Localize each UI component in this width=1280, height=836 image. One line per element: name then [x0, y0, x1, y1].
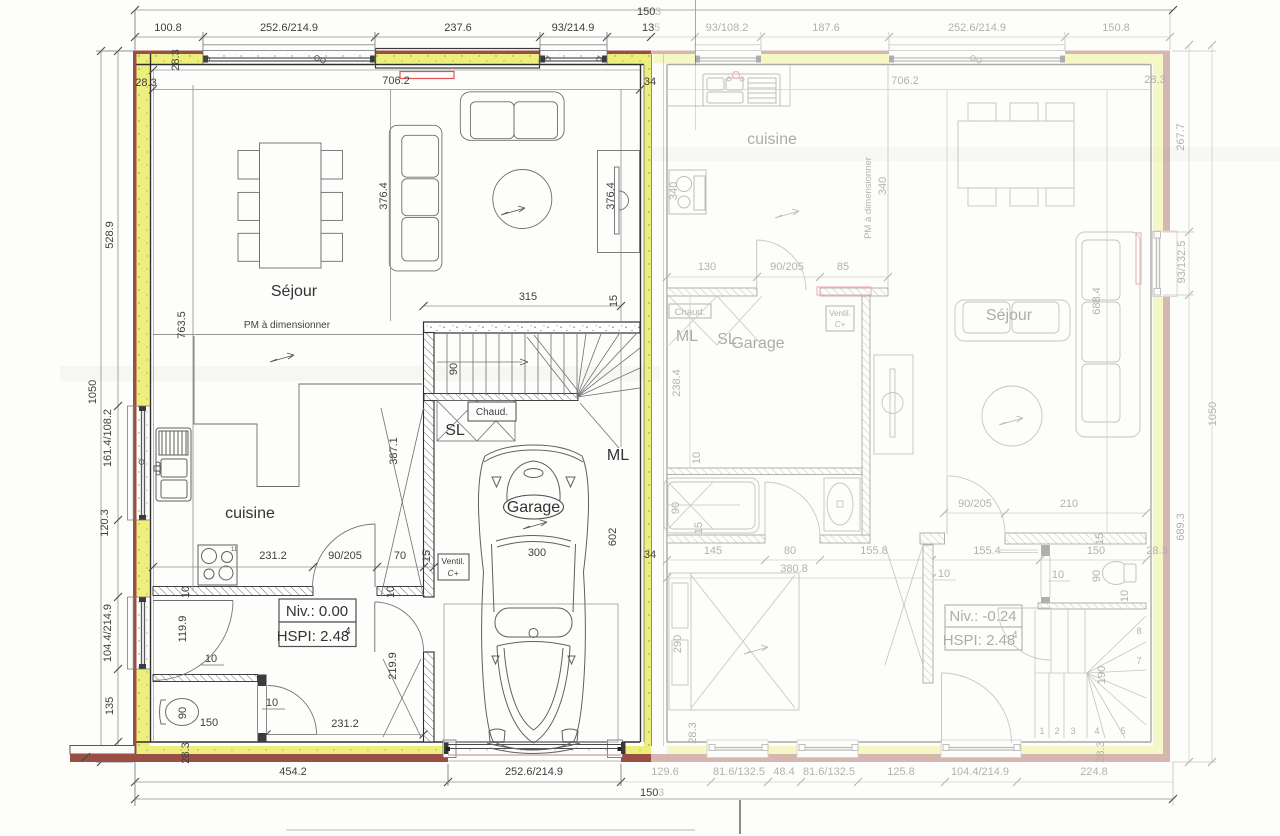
- svg-text:376.4: 376.4: [378, 182, 390, 210]
- svg-text:119.9: 119.9: [177, 616, 189, 643]
- svg-text:ML: ML: [607, 447, 629, 464]
- svg-text:Chaud.: Chaud.: [476, 407, 508, 418]
- svg-text:100.8: 100.8: [154, 22, 182, 34]
- svg-text:252.6/214.9: 252.6/214.9: [505, 766, 563, 778]
- svg-text:120.3: 120.3: [99, 509, 111, 537]
- svg-text:90: 90: [670, 502, 682, 514]
- svg-text:155.4: 155.4: [973, 545, 1001, 557]
- svg-text:688.4: 688.4: [1091, 287, 1103, 315]
- svg-text:2: 2: [1054, 726, 1059, 736]
- svg-text:70: 70: [394, 550, 406, 562]
- svg-text:145: 145: [704, 545, 722, 557]
- svg-text:28.3: 28.3: [135, 77, 156, 89]
- svg-text:90: 90: [1091, 570, 1103, 582]
- svg-text:8: 8: [1136, 626, 1141, 636]
- svg-text:763.5: 763.5: [176, 311, 188, 339]
- svg-text:10: 10: [938, 568, 950, 580]
- svg-text:3: 3: [655, 6, 661, 18]
- svg-text:706.2: 706.2: [382, 75, 410, 87]
- svg-text:10: 10: [1119, 590, 1131, 602]
- svg-text:224.8: 224.8: [1080, 766, 1108, 778]
- svg-text:15: 15: [693, 522, 705, 534]
- svg-text:1: 1: [1039, 726, 1044, 736]
- svg-text:7: 7: [1136, 656, 1141, 666]
- svg-text:252.6/214.9: 252.6/214.9: [260, 22, 318, 34]
- svg-text:10: 10: [180, 586, 192, 598]
- svg-text:150: 150: [200, 717, 218, 729]
- svg-text:340: 340: [877, 177, 889, 195]
- svg-text:5: 5: [1120, 726, 1125, 736]
- svg-text:150: 150: [640, 787, 658, 799]
- svg-text:cuisine: cuisine: [225, 505, 275, 522]
- svg-text:10: 10: [205, 653, 217, 665]
- svg-text:689.3: 689.3: [1175, 513, 1187, 541]
- svg-text:187.6: 187.6: [812, 22, 840, 34]
- svg-text:3: 3: [1070, 726, 1075, 736]
- svg-text:C+: C+: [447, 568, 458, 578]
- svg-text:28.3: 28.3: [180, 742, 192, 763]
- svg-text:231.2: 231.2: [331, 718, 359, 730]
- svg-text:315: 315: [519, 291, 537, 303]
- svg-text:Séjour: Séjour: [271, 283, 318, 300]
- svg-text:Niv.: -0.24: Niv.: -0.24: [949, 608, 1016, 625]
- svg-text:238.4: 238.4: [671, 369, 683, 397]
- svg-text:290: 290: [672, 635, 684, 653]
- svg-text:93/132.5: 93/132.5: [1176, 241, 1188, 284]
- svg-text:4: 4: [345, 626, 351, 637]
- svg-text:454.2: 454.2: [279, 766, 307, 778]
- svg-text:129.6: 129.6: [651, 766, 679, 778]
- svg-text:80: 80: [784, 545, 796, 557]
- svg-text:28.3: 28.3: [1146, 545, 1167, 557]
- svg-text:15: 15: [421, 550, 433, 562]
- svg-text:210: 210: [1060, 498, 1078, 510]
- svg-text:1050: 1050: [1207, 402, 1219, 426]
- svg-text:267.7: 267.7: [1175, 123, 1187, 151]
- svg-text:85: 85: [837, 261, 849, 273]
- svg-text:10: 10: [385, 586, 397, 598]
- svg-text:Niv.: 0.00: Niv.: 0.00: [286, 603, 348, 620]
- svg-text:300: 300: [528, 547, 546, 559]
- svg-text:13: 13: [642, 22, 654, 34]
- svg-text:Séjour: Séjour: [986, 307, 1033, 324]
- svg-text:81.6/132.5: 81.6/132.5: [803, 766, 855, 778]
- svg-text:1050: 1050: [87, 380, 99, 404]
- svg-text:706.2: 706.2: [891, 75, 919, 87]
- svg-text:SL: SL: [445, 422, 465, 439]
- svg-text:PM à dimensionner: PM à dimensionner: [244, 320, 331, 331]
- svg-text:104.4/214.9: 104.4/214.9: [951, 766, 1009, 778]
- svg-text:ML: ML: [676, 328, 698, 345]
- svg-text:155.8: 155.8: [860, 545, 888, 557]
- svg-text:90: 90: [177, 707, 189, 719]
- svg-text:C+: C+: [835, 320, 846, 329]
- svg-text:387.1: 387.1: [388, 437, 400, 465]
- svg-text:150: 150: [1087, 545, 1105, 557]
- svg-text:HSPI: 2.48: HSPI: 2.48: [277, 628, 350, 645]
- svg-text:528.9: 528.9: [104, 221, 116, 249]
- svg-text:10: 10: [266, 697, 278, 709]
- svg-text:4: 4: [1094, 726, 1099, 736]
- svg-text:15: 15: [1094, 533, 1106, 545]
- svg-text:28.3: 28.3: [1144, 74, 1165, 86]
- svg-text:Garage: Garage: [507, 499, 560, 516]
- svg-text:PM à dimensionner: PM à dimensionner: [863, 157, 874, 239]
- svg-text:190: 190: [1096, 666, 1108, 684]
- svg-text:4: 4: [1012, 630, 1018, 641]
- svg-text:602: 602: [607, 528, 619, 546]
- svg-text:48.4: 48.4: [773, 766, 794, 778]
- svg-text:340: 340: [668, 182, 680, 200]
- svg-text:81.6/132.5: 81.6/132.5: [713, 766, 765, 778]
- svg-text:150.8: 150.8: [1102, 22, 1130, 34]
- svg-text:150: 150: [637, 6, 655, 18]
- svg-text:Garage: Garage: [731, 335, 784, 352]
- svg-text:135: 135: [104, 697, 116, 715]
- svg-text:161.4/108.2: 161.4/108.2: [102, 409, 114, 467]
- svg-text:10: 10: [691, 452, 703, 464]
- svg-text:90/205: 90/205: [328, 550, 362, 562]
- svg-text:3: 3: [658, 787, 664, 799]
- svg-text:28.3: 28.3: [1095, 741, 1107, 762]
- svg-text:28.3: 28.3: [687, 722, 699, 743]
- svg-text:90: 90: [448, 363, 460, 375]
- svg-text:93/108.2: 93/108.2: [706, 22, 749, 34]
- svg-text:219.9: 219.9: [387, 652, 399, 680]
- svg-text:130: 130: [698, 261, 716, 273]
- svg-text:125.8: 125.8: [887, 766, 915, 778]
- svg-text:Ventil.: Ventil.: [441, 556, 464, 566]
- svg-text:252.6/214.9: 252.6/214.9: [948, 22, 1006, 34]
- svg-text:93/214.9: 93/214.9: [552, 22, 595, 34]
- svg-text:28.3: 28.3: [170, 49, 182, 70]
- svg-text:34: 34: [644, 76, 656, 88]
- svg-text:5: 5: [654, 22, 660, 34]
- svg-text:34: 34: [644, 549, 656, 561]
- svg-text:231.2: 231.2: [259, 550, 287, 562]
- svg-text:237.6: 237.6: [444, 22, 472, 34]
- svg-text:Ventil.: Ventil.: [829, 309, 851, 318]
- svg-text:104.4/214.9: 104.4/214.9: [102, 604, 114, 662]
- svg-text:10: 10: [1052, 569, 1064, 581]
- svg-text:11: 11: [231, 547, 238, 553]
- svg-text:15: 15: [608, 295, 620, 307]
- svg-text:HSPI: 2.48: HSPI: 2.48: [943, 632, 1016, 649]
- svg-text:376.4: 376.4: [605, 182, 617, 210]
- svg-text:90/205: 90/205: [958, 498, 992, 510]
- svg-text:cuisine: cuisine: [747, 131, 797, 148]
- svg-text:90/205: 90/205: [770, 261, 804, 273]
